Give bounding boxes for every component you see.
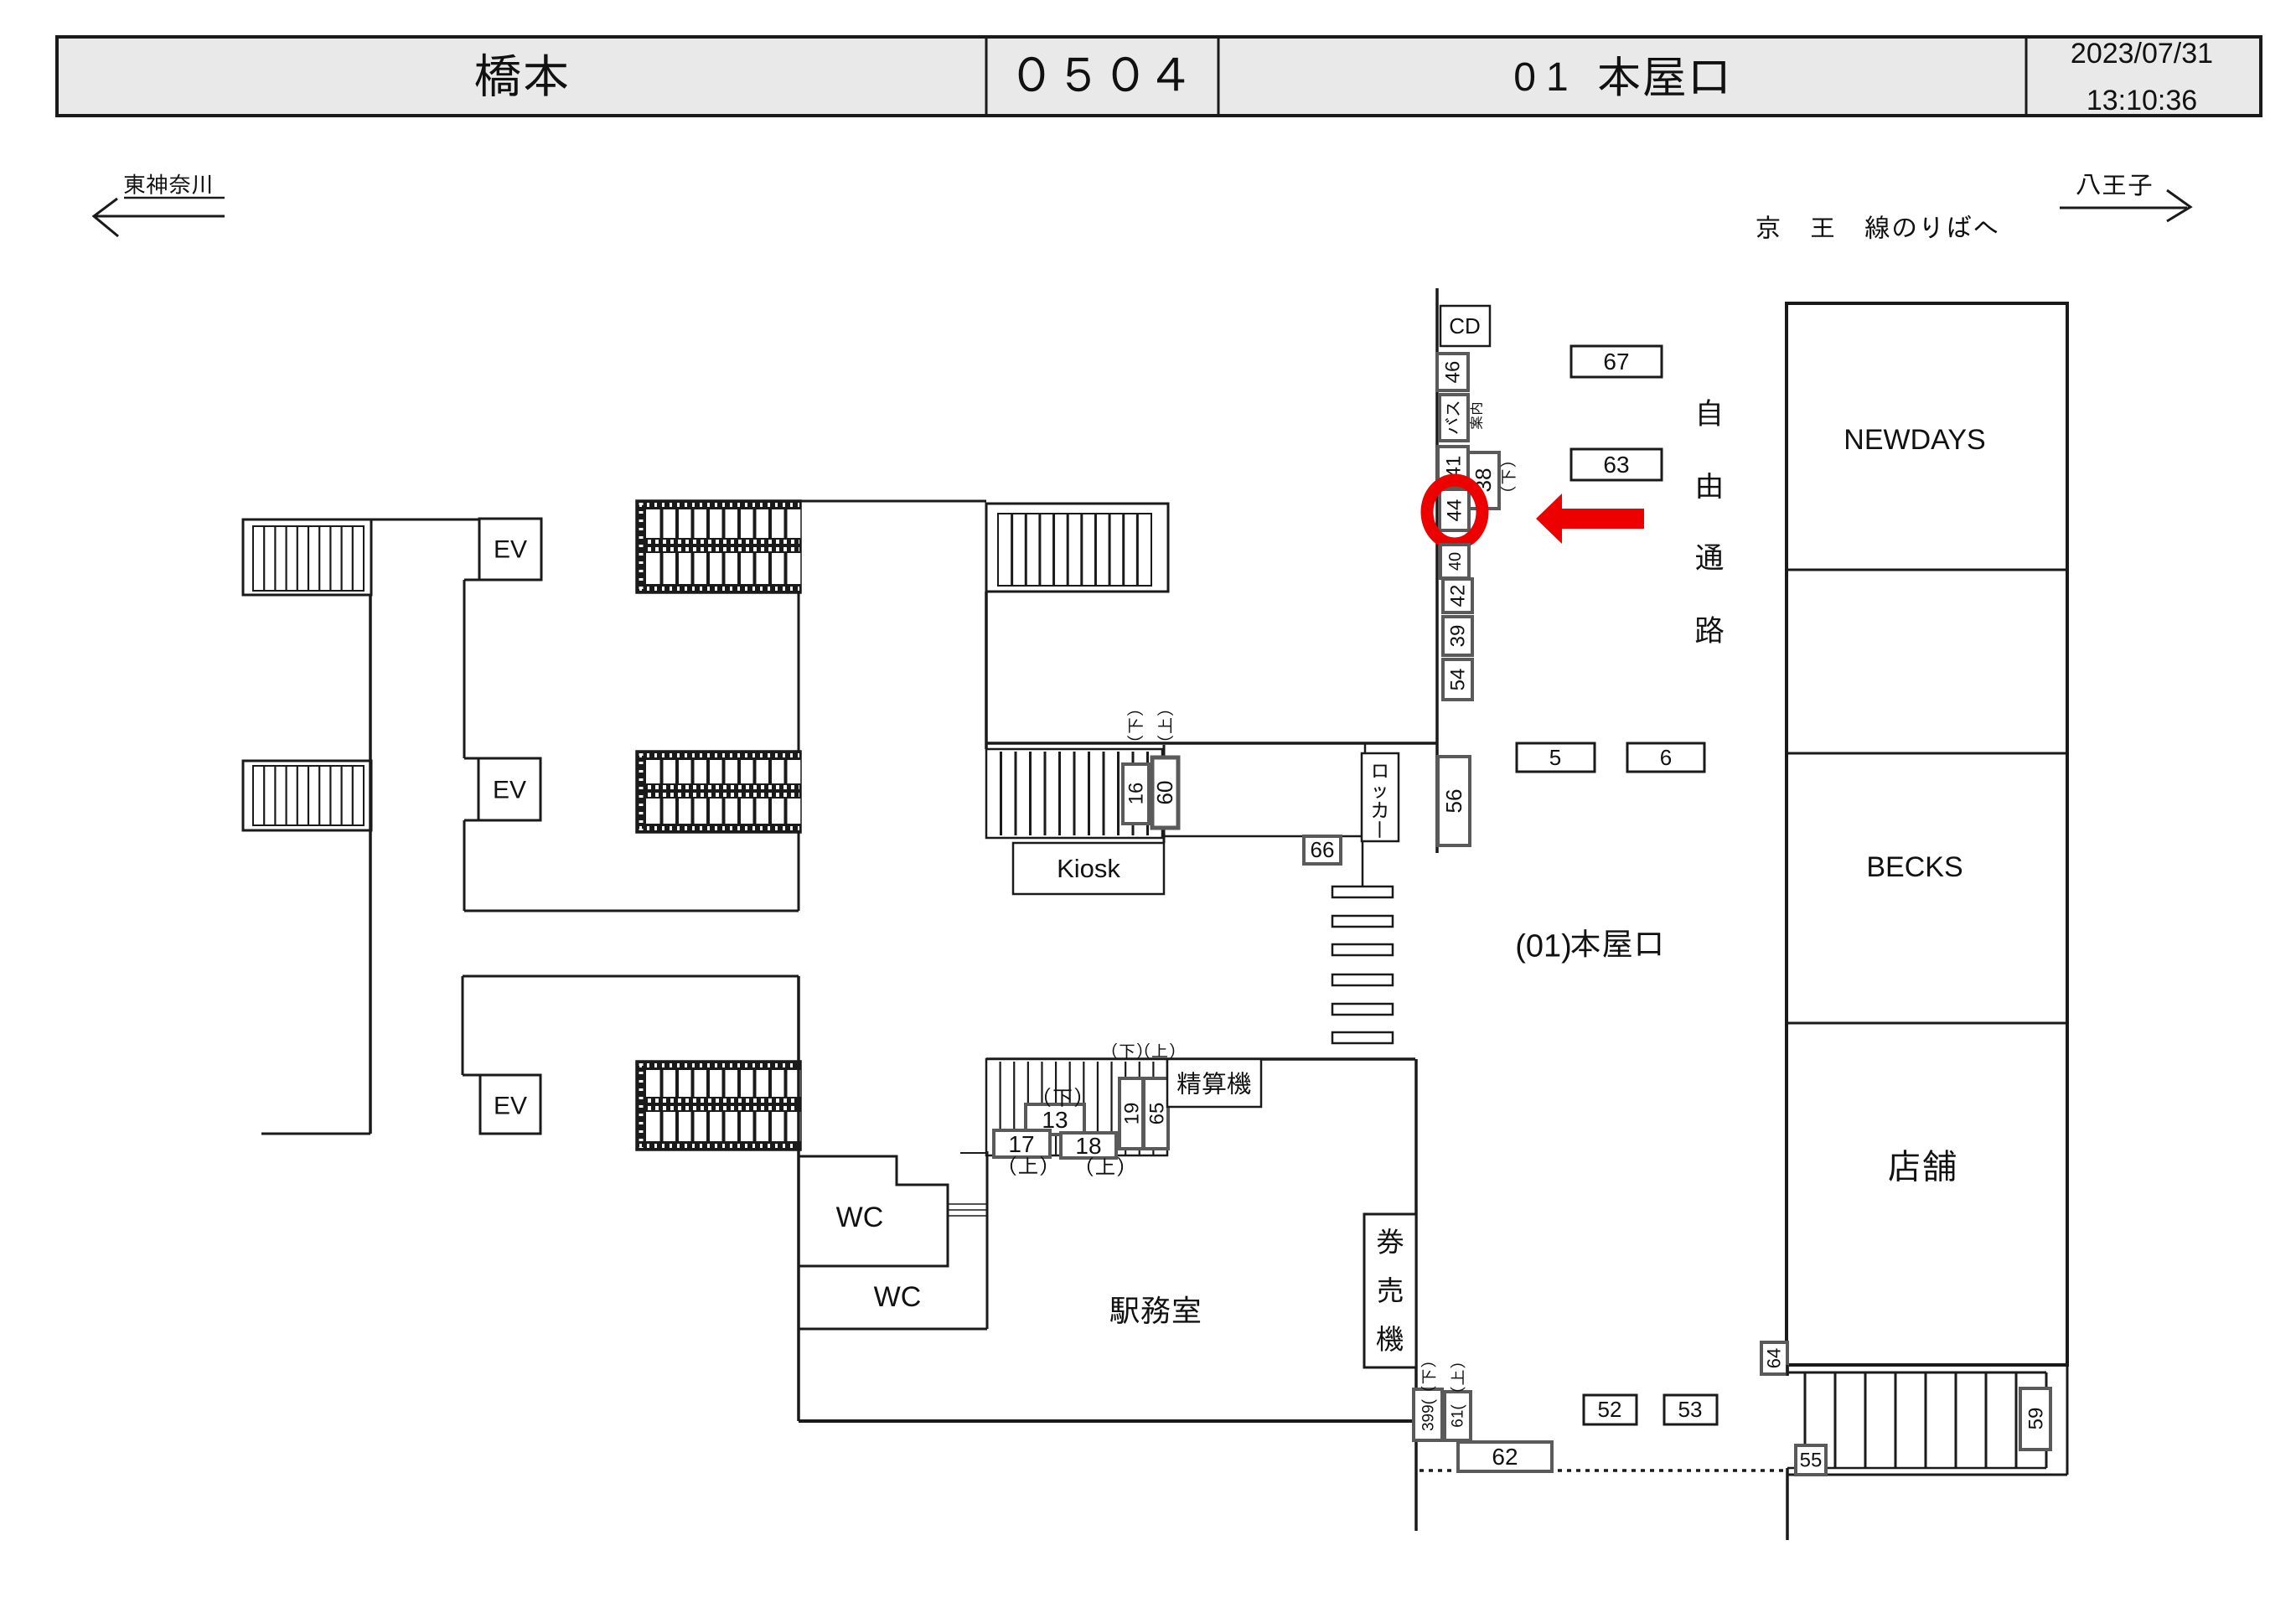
svg-text:44: 44: [1443, 499, 1466, 522]
svg-text:6: 6: [1660, 745, 1672, 770]
svg-text:Kiosk: Kiosk: [1057, 854, 1120, 883]
svg-text:52: 52: [1598, 1397, 1622, 1422]
svg-text:54: 54: [1446, 669, 1469, 691]
svg-text:BECKS: BECKS: [1866, 851, 1962, 883]
svg-text:18: 18: [1075, 1133, 1101, 1159]
svg-text:EV: EV: [493, 777, 526, 804]
svg-text:40: 40: [1446, 552, 1465, 571]
svg-text:64: 64: [1764, 1348, 1785, 1368]
svg-text:WC: WC: [874, 1281, 922, 1313]
svg-text:53: 53: [1678, 1397, 1703, 1422]
svg-text:61(: 61(: [1450, 1404, 1467, 1428]
svg-text:39: 39: [1446, 625, 1469, 648]
svg-text:13:10:36: 13:10:36: [2087, 85, 2197, 116]
svg-text:2023/07/31: 2023/07/31: [2071, 38, 2213, 70]
svg-text:01: 01: [1513, 55, 1578, 100]
svg-text:WC: WC: [836, 1202, 884, 1233]
svg-text:46: 46: [1441, 361, 1464, 384]
svg-text:EV: EV: [494, 1093, 527, 1120]
svg-text:60: 60: [1152, 781, 1177, 805]
svg-text:62: 62: [1492, 1444, 1518, 1470]
svg-text:63: 63: [1603, 452, 1629, 478]
svg-text:CD: CD: [1449, 313, 1481, 339]
svg-text:EV: EV: [494, 536, 527, 564]
svg-text:42: 42: [1446, 585, 1469, 607]
svg-text:17: 17: [1008, 1131, 1034, 1157]
svg-text:19: 19: [1120, 1103, 1143, 1125]
svg-text:59: 59: [2025, 1408, 2047, 1430]
svg-text:65: 65: [1145, 1103, 1168, 1125]
svg-text:16: 16: [1125, 783, 1147, 805]
svg-text:NEWDAYS: NEWDAYS: [1844, 424, 1985, 456]
svg-text:5: 5: [1549, 745, 1561, 770]
svg-text:66: 66: [1311, 837, 1335, 862]
svg-text:56: 56: [1441, 789, 1466, 814]
svg-text:67: 67: [1603, 349, 1629, 375]
svg-text:(01): (01): [1515, 928, 1572, 964]
svg-text:399(: 399(: [1420, 1398, 1438, 1431]
svg-text:55: 55: [1800, 1449, 1823, 1471]
